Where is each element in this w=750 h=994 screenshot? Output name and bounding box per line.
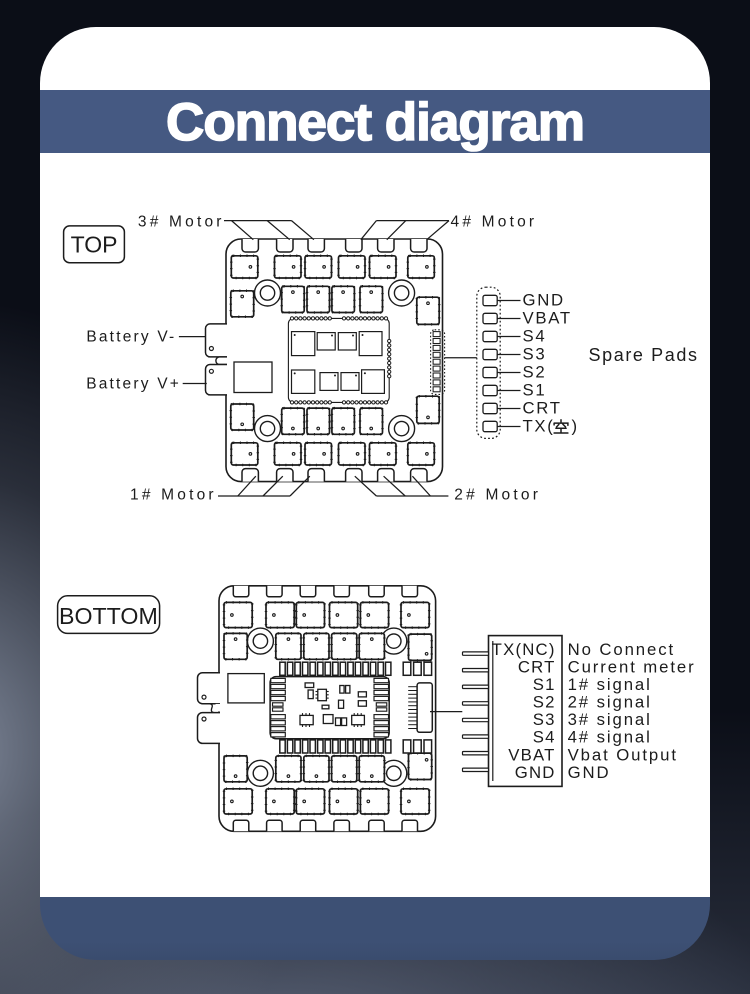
svg-text:4# signal: 4# signal [568, 728, 652, 747]
svg-text:TX(NC): TX(NC) [492, 640, 556, 659]
svg-text:S4: S4 [533, 728, 556, 747]
svg-text:No Connect: No Connect [568, 640, 675, 659]
svg-text:Vbat Output: Vbat Output [568, 745, 678, 764]
svg-text:S2: S2 [523, 362, 547, 381]
svg-text:2# Motor: 2# Motor [454, 487, 541, 504]
svg-text:Battery V-: Battery V- [86, 328, 176, 345]
svg-text:4# Motor: 4# Motor [451, 214, 538, 231]
svg-text:GND: GND [523, 290, 565, 309]
svg-text:CRT: CRT [518, 658, 556, 677]
svg-text:S3: S3 [533, 710, 556, 729]
svg-text:TOP: TOP [71, 232, 118, 258]
svg-text:Current meter: Current meter [568, 658, 696, 677]
svg-text:GND: GND [515, 763, 556, 782]
svg-text:S3: S3 [523, 344, 547, 363]
svg-text:1# signal: 1# signal [568, 675, 652, 694]
svg-text:GND: GND [568, 763, 611, 782]
svg-text:1# Motor: 1# Motor [130, 487, 217, 504]
svg-text:S1: S1 [533, 675, 556, 694]
svg-text:VBAT: VBAT [508, 745, 555, 764]
svg-text:3# Motor: 3# Motor [138, 214, 225, 231]
svg-text:CRT: CRT [523, 398, 562, 417]
svg-text:VBAT: VBAT [523, 308, 572, 327]
svg-text:Spare Pads: Spare Pads [589, 345, 699, 365]
svg-text:): ) [572, 416, 578, 435]
svg-text:S2: S2 [533, 693, 556, 712]
svg-text:S1: S1 [523, 380, 547, 399]
svg-text:Battery V+: Battery V+ [86, 375, 181, 392]
svg-text:S4: S4 [523, 326, 547, 345]
svg-text:3# signal: 3# signal [568, 710, 652, 729]
svg-text:BOTTOM: BOTTOM [59, 603, 158, 629]
svg-text:2# signal: 2# signal [568, 693, 652, 712]
svg-text:TX(: TX( [523, 416, 555, 435]
